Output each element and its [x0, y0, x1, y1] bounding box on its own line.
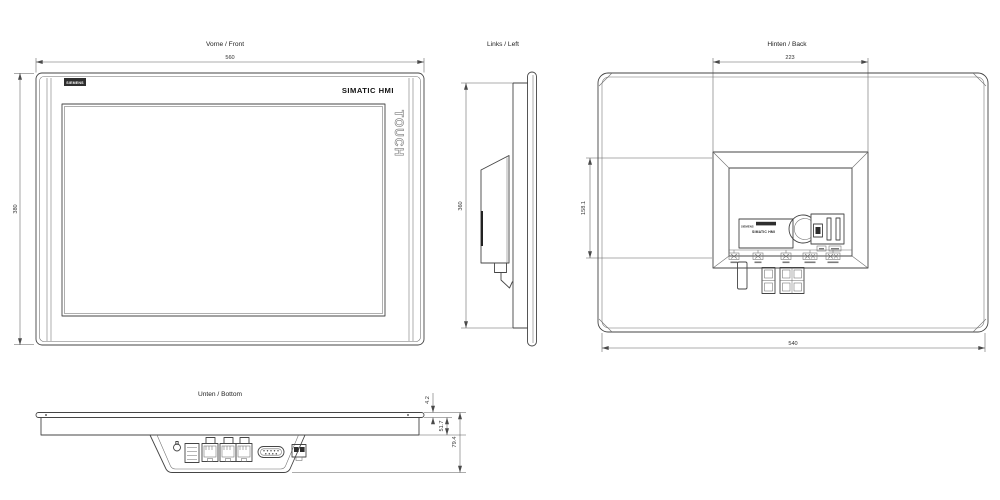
siemens-logo-text: SIEMENS — [66, 81, 84, 85]
simatic-hmi-label: SIMATIC HMI — [342, 86, 394, 95]
left-view: Links / Left 360 — [458, 41, 537, 346]
left-height-dimension: 360 — [458, 83, 513, 328]
front-screen-inner — [65, 107, 383, 314]
back-view: Hinten / Back 223 158.1 540 — [581, 41, 988, 352]
bottom-front-bezel-edge — [36, 413, 424, 418]
label-plate-model: SIMATIC HMI — [752, 230, 775, 234]
label-plate-brand: SIEMENS — [741, 225, 754, 229]
left-view-title: Links / Left — [487, 41, 519, 48]
terminal-block-small — [762, 268, 775, 294]
connector-bay-inner — [157, 435, 299, 469]
front-width-dimension: 560 — [36, 55, 424, 73]
rear-connector-symbol-icon — [826, 250, 840, 263]
left-rear-housing — [481, 156, 509, 264]
siemens-logo-badge: SIEMENS — [64, 78, 86, 86]
bottom-body-dim-label: 51.7 — [439, 421, 445, 432]
rear-connector-symbol-icon — [781, 250, 791, 263]
rating-label-plate: SIEMENS SIMATIC HMI — [739, 219, 793, 248]
touch-vertical-label: TOUCH — [392, 110, 404, 157]
barcode-icon — [756, 222, 776, 226]
bezel-screw-dot — [45, 414, 47, 416]
front-inner-frame — [40, 77, 421, 342]
db9-serial-icon — [258, 447, 284, 458]
front-height-dim-label: 380 — [13, 204, 19, 213]
rear-connector-symbol-icon — [753, 250, 763, 263]
back-view-title: Hinten / Back — [767, 41, 807, 48]
back-recess-width-dim-label: 223 — [785, 55, 794, 61]
memory-slot-icon — [836, 218, 840, 240]
front-height-dimension: 380 — [13, 73, 34, 345]
bottom-body-bar — [41, 418, 419, 436]
connector-bay — [150, 435, 305, 473]
front-bezel-edges — [47, 78, 413, 341]
rear-connector-symbols — [729, 250, 840, 263]
back-width-dimension: 540 — [602, 333, 985, 352]
rj45-single-icon — [236, 438, 252, 462]
bottom-view: Unten / Bottom — [36, 391, 466, 473]
power-terminal-icon — [185, 444, 199, 463]
left-bottom-step — [495, 263, 507, 273]
rear-connector-symbol-icon — [729, 250, 739, 263]
bottom-body-dimension: 51.7 — [420, 418, 467, 436]
memory-slot-icon — [827, 218, 831, 240]
terminal-block-large — [780, 268, 804, 294]
front-outer-frame — [36, 73, 424, 345]
bottom-total-dim-label: 79.4 — [452, 437, 458, 448]
back-inner-frame — [602, 77, 984, 328]
rear-connector-symbol-icon — [803, 250, 817, 263]
bottom-view-title: Unten / Bottom — [198, 391, 242, 398]
front-view-title: Vorne / Front — [206, 41, 244, 48]
technical-drawing-page: Vorne / Front 560 380 SIEMENS SIMATIC HM… — [0, 0, 1000, 500]
back-side-dim-label: 158.1 — [581, 201, 587, 215]
grounding-screw-icon — [174, 442, 181, 452]
left-mounting-clip-icon — [501, 273, 513, 289]
back-recess-width-dimension: 223 — [713, 55, 868, 152]
left-height-dim-label: 360 — [458, 201, 464, 210]
front-view: Vorne / Front 560 380 SIEMENS SIMATIC HM… — [13, 41, 424, 345]
pull-tab — [738, 262, 748, 289]
front-width-dim-label: 560 — [225, 55, 234, 61]
rj45-double-icon — [202, 438, 236, 462]
back-connection-recess — [713, 152, 868, 268]
interface-slot-box — [811, 214, 844, 244]
front-screen — [62, 104, 385, 316]
drawing-canvas: Vorne / Front 560 380 SIEMENS SIMATIC HM… — [0, 0, 1000, 500]
bottom-front-dimension: 4.2 — [424, 393, 466, 424]
left-rear-plate — [513, 83, 528, 328]
back-width-dim-label: 540 — [788, 341, 797, 347]
usb-dual-icon — [292, 445, 306, 461]
bezel-screw-dot — [407, 414, 409, 416]
left-front-bezel — [528, 72, 537, 346]
bottom-front-dim-label: 4.2 — [425, 396, 431, 404]
back-side-dimension: 158.1 — [581, 158, 712, 258]
